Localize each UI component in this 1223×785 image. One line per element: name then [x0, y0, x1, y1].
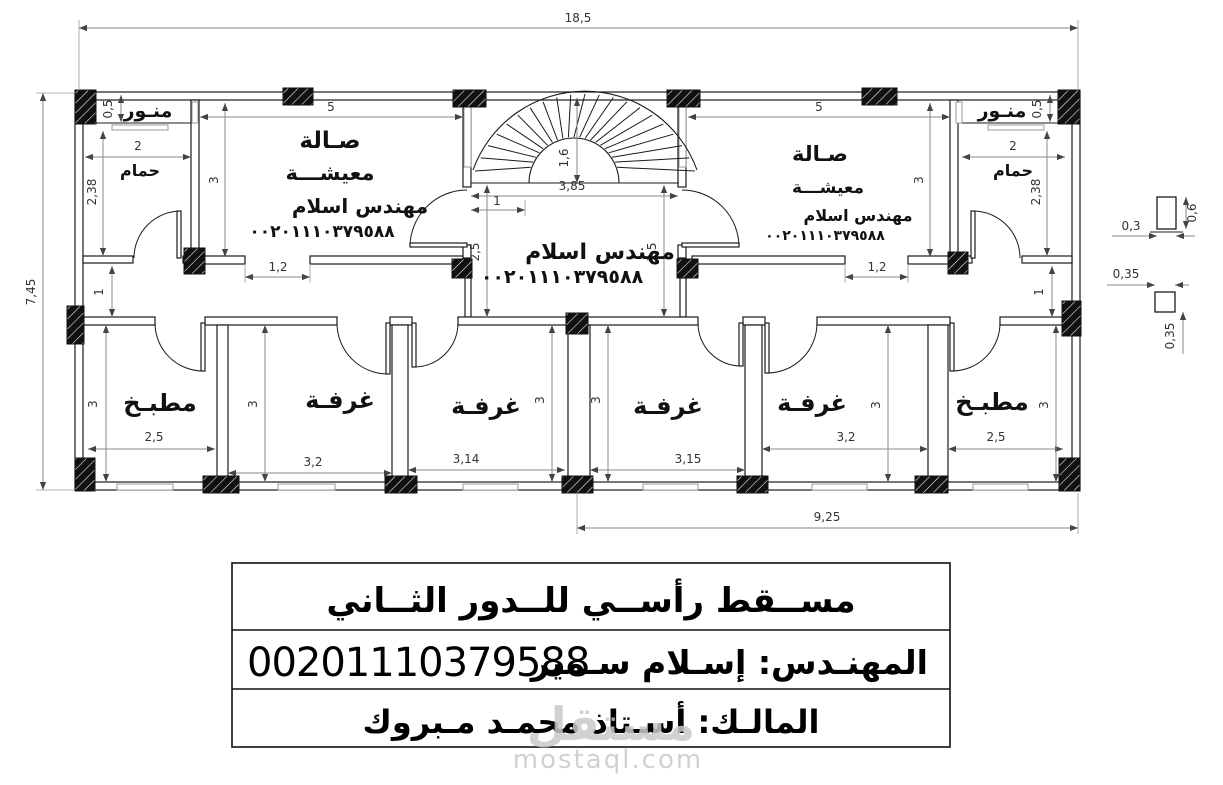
wall-segment	[743, 317, 765, 325]
label-engineer-left: مهندس اسلام	[292, 194, 428, 218]
dim-label: 2,5	[144, 430, 163, 444]
label-lightwell-right: منـور	[977, 100, 1027, 122]
label-room-2: غرفـة	[451, 392, 521, 420]
label-engineer-center: مهندس اسلام	[525, 240, 675, 265]
column	[203, 476, 239, 493]
door-leaf	[177, 211, 181, 258]
detail-column-square: 0,35 0,35	[1107, 267, 1189, 354]
dim-label: 3	[533, 396, 547, 404]
dim-label: 1	[493, 194, 501, 208]
dim-label: 3	[1037, 401, 1051, 409]
dim-label: 0,35	[1113, 267, 1140, 281]
dim-label: 2	[1009, 139, 1017, 153]
dim-label: 2,5	[468, 242, 482, 261]
wall-segment	[1022, 256, 1072, 263]
door-leaf	[950, 323, 954, 371]
wall-segment	[191, 100, 199, 263]
wall-segment	[205, 317, 337, 325]
wall-segment	[950, 100, 958, 263]
column	[67, 306, 84, 344]
dim-label: 3,2	[303, 455, 322, 469]
wall-segment	[465, 278, 471, 317]
column	[453, 90, 486, 107]
label-lightwell-left: منـور	[123, 100, 173, 122]
wall-segment	[1000, 317, 1072, 325]
window	[464, 107, 471, 167]
dim-label: 2,38	[85, 179, 99, 206]
wall-segment	[745, 325, 762, 482]
door-leaf	[201, 323, 205, 371]
window	[973, 484, 1028, 490]
dim-label: 5	[327, 100, 335, 114]
column	[737, 476, 768, 493]
wall-segment	[680, 278, 686, 317]
dim-label: 7,45	[24, 279, 38, 306]
label-phone-center: ٠٠٢٠١١١٠٣٧٩٥٨٨	[481, 266, 644, 288]
wall-segment	[390, 317, 412, 325]
window	[117, 484, 173, 490]
column	[1058, 90, 1080, 124]
column	[862, 88, 897, 105]
dim-label: 2	[134, 139, 142, 153]
column	[667, 90, 700, 107]
column	[283, 88, 313, 105]
label-room-1: غرفـة	[305, 386, 375, 414]
window	[956, 102, 962, 123]
label-kitchen-right: مطبـخ	[955, 388, 1029, 416]
dim-label: 3	[246, 400, 260, 408]
dim-label: 3,15	[675, 452, 702, 466]
window	[643, 484, 698, 490]
dim-label: 3,2	[836, 430, 855, 444]
dim-label: 0,3	[1121, 219, 1140, 233]
wall-segment	[310, 256, 463, 264]
wall-segment	[392, 325, 408, 482]
door-leaf	[739, 323, 743, 366]
floor-plan-drawing: 18,5 7,45 9,25 5 5 3	[0, 0, 1223, 785]
dim-label: 1,2	[867, 260, 886, 274]
dim-label: 0,35	[1163, 323, 1177, 350]
door-leaf	[386, 323, 390, 374]
dim-label: 2,5	[986, 430, 1005, 444]
dim-label: 0,5	[1030, 99, 1044, 118]
dim-label: 1,6	[557, 148, 571, 167]
dim-label: 3	[869, 401, 883, 409]
wall-segment	[817, 317, 950, 325]
column	[75, 90, 96, 124]
dim-label: 3	[86, 400, 100, 408]
window	[988, 125, 1044, 130]
dim-label: 0,6	[1185, 203, 1199, 222]
label-hall-left-2: معيشـــة	[285, 161, 374, 185]
wall-segment	[199, 256, 245, 264]
label-kitchen-left: مطبـخ	[123, 389, 197, 417]
drawing-title: مســقط رأســي للــدور الثــاني	[326, 578, 855, 621]
window	[812, 484, 867, 490]
column	[75, 458, 95, 491]
label-engineer-right: مهندس اسلام	[804, 206, 913, 225]
wall-segment	[568, 325, 590, 482]
door-leaf	[971, 211, 975, 258]
label-bathroom-right: حمام	[993, 161, 1033, 180]
dim-label: 3,85	[559, 179, 586, 193]
wall-segment	[928, 325, 948, 482]
label-phone-right: ٠٠٢٠١١١٠٣٧٩٥٨٨	[765, 228, 885, 244]
column-details: 0,3 0,6 0,35 0,35	[1107, 197, 1199, 354]
label-bathroom-left: حمام	[120, 161, 160, 180]
watermark-logo: مستقل	[527, 697, 695, 751]
dim-total-width: 18,5	[79, 11, 1078, 90]
dim-label: 3	[912, 176, 926, 184]
floor-plan-page: 18,5 7,45 9,25 5 5 3	[0, 0, 1223, 785]
dim-label: 18,5	[565, 11, 592, 25]
watermark: مستقل mostaql.com	[513, 697, 703, 775]
dim-label: 3	[589, 396, 603, 404]
label-hall-right-1: صـالة	[792, 142, 848, 166]
label-room-4: غرفـة	[777, 389, 847, 417]
label-phone-left: ٠٠٢٠١١١٠٣٧٩٥٨٨	[249, 222, 395, 242]
wall-segment	[83, 256, 133, 263]
wall-segment	[83, 317, 155, 325]
door-leaf	[410, 243, 467, 247]
column	[566, 313, 588, 334]
dim-label: 1	[1032, 288, 1046, 296]
column	[915, 476, 948, 493]
dim-label: 3	[207, 176, 221, 184]
column	[385, 476, 417, 493]
label-hall-left-1: صـالة	[299, 128, 360, 154]
dim-label: 0,5	[101, 99, 115, 118]
dim-label: 2,38	[1029, 179, 1043, 206]
window	[192, 102, 198, 123]
window	[463, 484, 518, 490]
dim-label: 3,14	[453, 452, 480, 466]
column	[948, 252, 968, 274]
column	[1059, 458, 1080, 491]
watermark-domain: mostaql.com	[513, 745, 703, 775]
column	[562, 476, 593, 493]
column	[184, 248, 205, 274]
window	[278, 484, 335, 490]
door-leaf	[765, 323, 769, 373]
window	[112, 125, 168, 130]
detail-column-rect: 0,3 0,6	[1112, 197, 1199, 236]
wall-segment	[692, 256, 845, 264]
dim-label: 1	[92, 288, 106, 296]
door-leaf	[682, 243, 739, 247]
dim-label: 9,25	[814, 510, 841, 524]
dim-right-span: 9,25	[577, 493, 1078, 534]
dim-total-height: 7,45	[24, 93, 75, 490]
door-leaf	[412, 323, 416, 367]
engineer-phone: 00201110379588	[247, 640, 589, 686]
label-hall-right-2: معيشـــة	[792, 178, 864, 198]
wall-segment	[217, 325, 228, 482]
dim-label: 5	[815, 100, 823, 114]
column	[1062, 301, 1081, 336]
dim-label: 1,2	[268, 260, 287, 274]
wall-segment	[908, 256, 950, 264]
column	[677, 259, 698, 278]
label-room-3: غرفـة	[633, 392, 703, 420]
